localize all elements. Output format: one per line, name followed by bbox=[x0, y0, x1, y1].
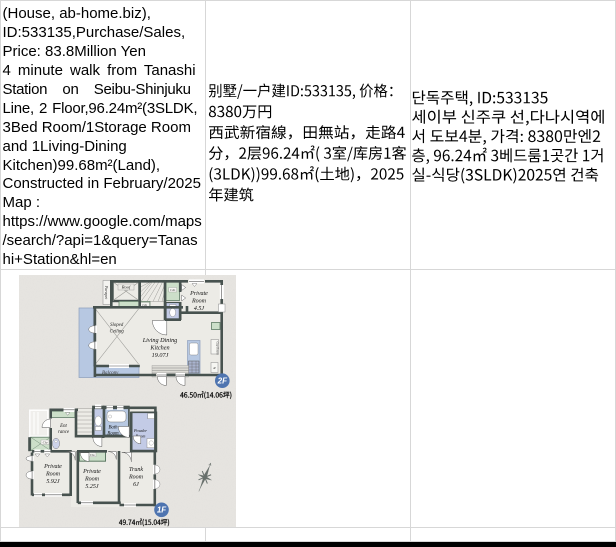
svg-text:Room: Room bbox=[84, 476, 100, 482]
svg-text:Living Dining: Living Dining bbox=[142, 337, 178, 344]
svg-text:5.92J: 5.92J bbox=[46, 479, 60, 485]
svg-text:Private: Private bbox=[43, 464, 62, 470]
svg-text:6J: 6J bbox=[133, 482, 139, 488]
svg-text:Clo: Clo bbox=[90, 452, 95, 456]
svg-text:Powder: Powder bbox=[133, 428, 147, 433]
svg-text:Private: Private bbox=[82, 469, 101, 475]
svg-text:Clo: Clo bbox=[43, 440, 48, 444]
svg-text:4.5J: 4.5J bbox=[194, 305, 205, 312]
svg-text:Room: Room bbox=[191, 298, 207, 304]
svg-text:5.25J: 5.25J bbox=[85, 484, 99, 490]
svg-text:Room: Room bbox=[45, 471, 61, 477]
svg-text:Parapet: Parapet bbox=[104, 284, 109, 299]
svg-text:Sloped: Sloped bbox=[110, 323, 124, 328]
svg-text:Roof: Roof bbox=[121, 284, 131, 289]
svg-text:Room: Room bbox=[128, 474, 144, 480]
svg-text:19.07J: 19.07J bbox=[152, 352, 169, 359]
svg-text:Kitchen: Kitchen bbox=[149, 344, 169, 351]
svg-text:Clo: Clo bbox=[170, 288, 175, 292]
svg-text:Ent: Ent bbox=[59, 424, 67, 429]
svg-text:Private: Private bbox=[189, 291, 208, 297]
svg-text:Cup Board: Cup Board bbox=[216, 341, 220, 355]
svg-text:2F: 2F bbox=[217, 376, 228, 385]
svg-text:Bath: Bath bbox=[108, 425, 118, 430]
svg-text:rance: rance bbox=[58, 430, 70, 435]
svg-text:1F: 1F bbox=[157, 505, 167, 514]
svg-text:Ceiling: Ceiling bbox=[110, 329, 125, 334]
svg-text:Trunk: Trunk bbox=[129, 467, 143, 473]
